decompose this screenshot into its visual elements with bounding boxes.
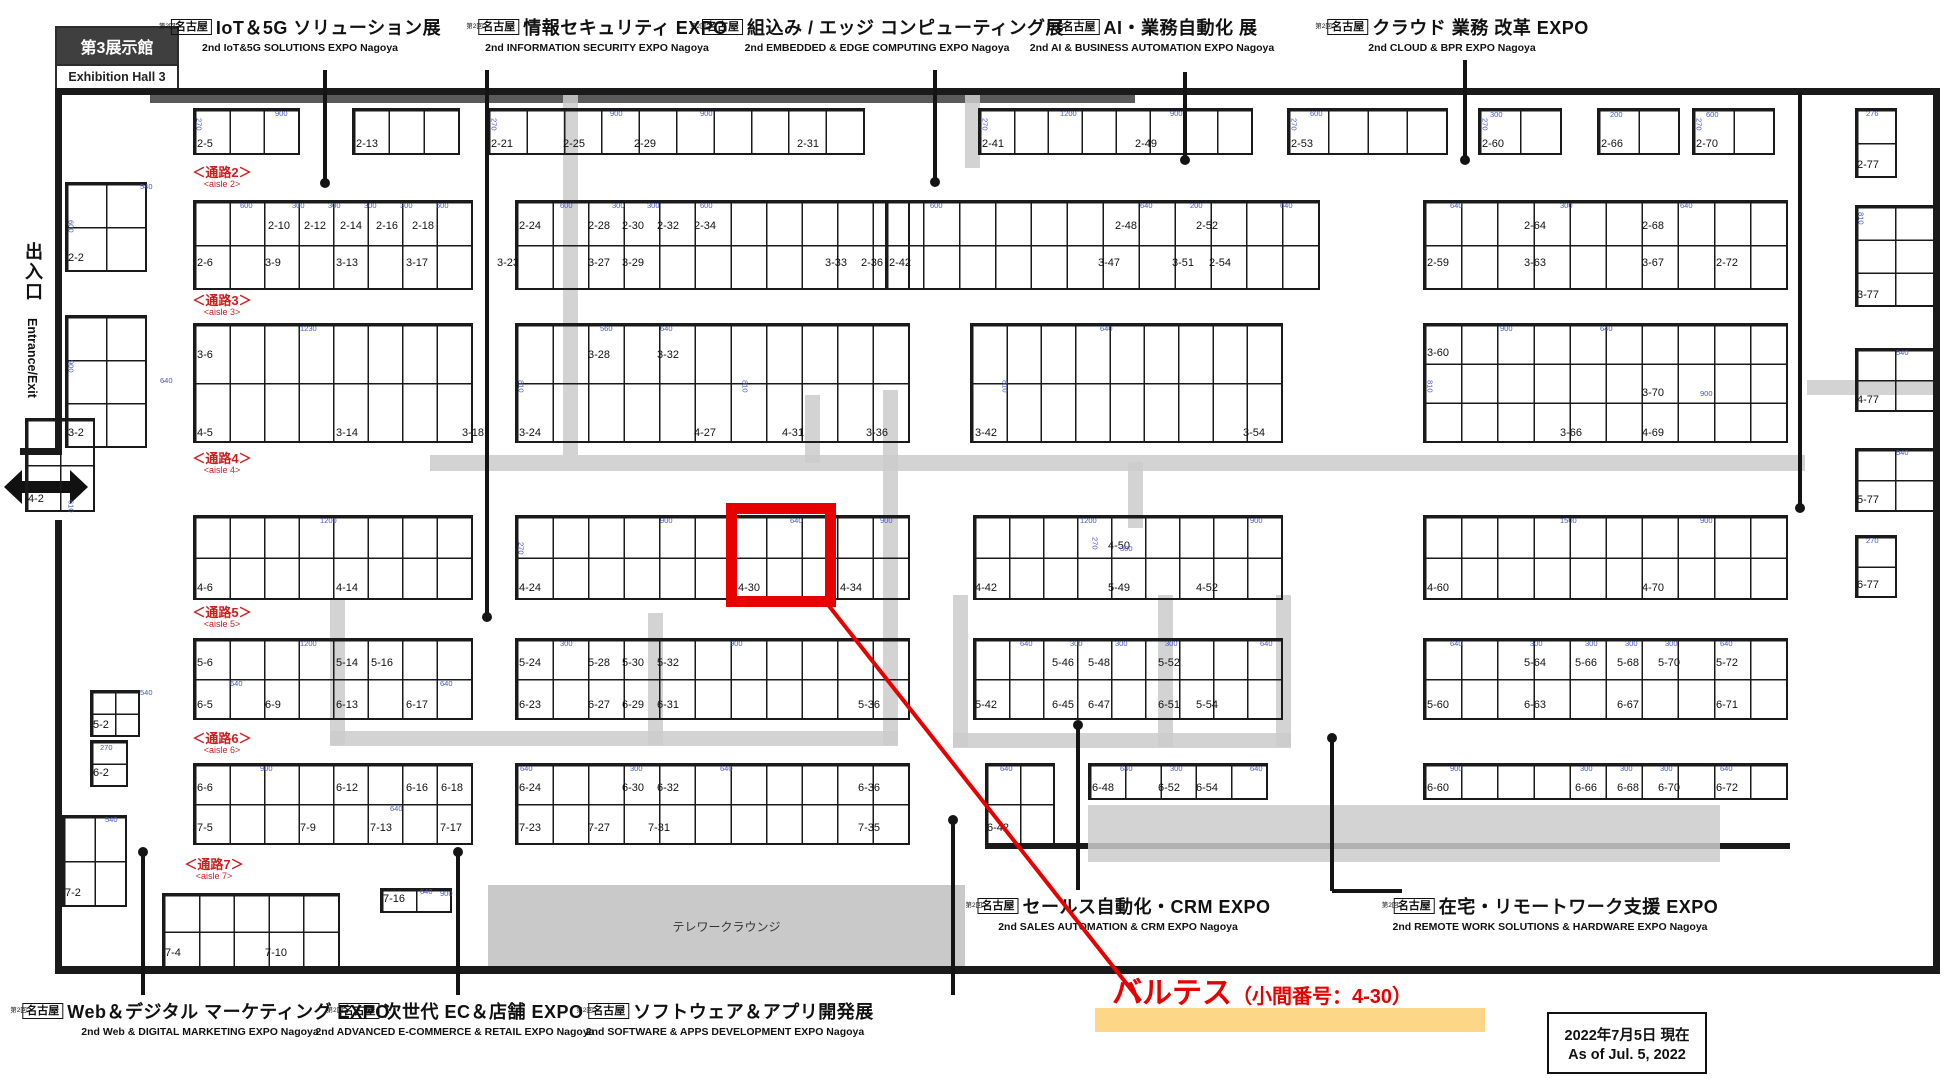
expo-edition-prefix: 第2回 <box>1046 24 1054 31</box>
dimension-label: 300 <box>1665 640 1678 648</box>
expo-title-jp: 組込み / エッジ コンピューティング展 <box>747 14 1064 40</box>
booth-label: 2-54 <box>1209 258 1231 269</box>
aisle-label-en: <aisle 6> <box>192 746 251 756</box>
booth-block <box>193 763 473 845</box>
booth-label: 3-18 <box>462 428 484 439</box>
expo-edition-prefix: 第2回 <box>576 1008 584 1015</box>
dimension-label: 640 <box>1260 640 1273 648</box>
booth-label: 6-17 <box>406 700 428 711</box>
date-box: 2022年7月5日 現在 As of Jul. 5, 2022 <box>1547 1012 1707 1074</box>
booth-label: 5-32 <box>657 658 679 669</box>
expo-title-en: 2nd SOFTWARE & APPS DEVELOPMENT EXPO Nag… <box>576 1026 874 1038</box>
booth-block <box>515 200 910 290</box>
booth-label: 2-10 <box>268 221 290 232</box>
dimension-label: 640 <box>1250 765 1263 773</box>
booth-label: 4-24 <box>519 583 541 594</box>
dimension-label: 900 <box>67 360 75 373</box>
aisle-label-en: <aisle 4> <box>192 466 251 476</box>
leader-line <box>323 70 327 183</box>
booth-label: 4-69 <box>1642 428 1664 439</box>
booth-label: 2-36 <box>861 258 883 269</box>
dimension-label: 300 <box>1620 765 1633 773</box>
venue-badge: 名古屋 <box>1327 19 1368 36</box>
booth-label: 3-60 <box>1427 348 1449 359</box>
booth-label: 7-5 <box>197 823 213 834</box>
booth-label: 2-59 <box>1427 258 1449 269</box>
expo-title-row: 第2回名古屋クラウド 業務 改革 EXPO <box>1315 14 1589 40</box>
booth-label: 7-13 <box>370 823 392 834</box>
booth-label: 5-70 <box>1658 658 1680 669</box>
booth-label: 2-6 <box>197 258 213 269</box>
booth-label: 2-77 <box>1857 160 1879 171</box>
booth-label: 6-16 <box>406 783 428 794</box>
dimension-label: 900 <box>610 110 623 118</box>
booth-label: 5-14 <box>336 658 358 669</box>
dimension-label: 900 <box>1700 390 1713 398</box>
dimension-label: 600 <box>700 202 713 210</box>
booth-block <box>515 763 910 845</box>
booth-label: 5-16 <box>371 658 393 669</box>
dimension-label: 900 <box>880 517 893 525</box>
booth-label: 3-23 <box>497 258 519 269</box>
booth-label: 6-5 <box>197 700 213 711</box>
booth-label: 3-27 <box>588 258 610 269</box>
expo-label: 第2回名古屋セールス自動化・CRM EXPO2nd SALES AUTOMATI… <box>965 893 1270 933</box>
dimension-label: 540 <box>1896 449 1909 457</box>
booth-label: 2-12 <box>304 221 326 232</box>
expo-label: 第2回名古屋情報セキュリティ EXPO2nd INFORMATION SECUR… <box>466 14 727 54</box>
expo-edition-prefix: 第2回 <box>466 24 474 31</box>
dimension-label: 270 <box>981 118 989 131</box>
highlight-booth-box <box>726 503 836 607</box>
expo-edition-prefix: 第2回 <box>1315 24 1323 31</box>
booth-label: 6-70 <box>1658 783 1680 794</box>
booth-label: 6-13 <box>336 700 358 711</box>
booth-label: 5-49 <box>1108 583 1130 594</box>
dimension-label: 900 <box>1450 765 1463 773</box>
aisle-label: ＜通路2＞<aisle 2> <box>192 166 251 190</box>
venue-badge: 名古屋 <box>702 19 743 36</box>
aisle-path <box>1088 805 1720 862</box>
dimension-label: 900 <box>260 765 273 773</box>
dimension-label: 640 <box>440 680 453 688</box>
booth-label: 2-60 <box>1482 139 1504 150</box>
booth-label: 2-16 <box>376 221 398 232</box>
booth-label: 6-54 <box>1196 783 1218 794</box>
dimension-label: 600 <box>1706 111 1719 119</box>
aisle-label-jp: ＜通路4＞ <box>192 452 251 466</box>
dimension-label: 300 <box>1580 765 1593 773</box>
aisle-label-jp: ＜通路5＞ <box>192 606 251 620</box>
booth-label: 6-30 <box>622 783 644 794</box>
dimension-label: 300 <box>400 202 413 210</box>
dimension-label: 560 <box>600 325 613 333</box>
venue-badge: 名古屋 <box>977 898 1018 915</box>
venue-badge: 名古屋 <box>478 19 519 36</box>
expo-edition-prefix: 第2回 <box>159 24 167 31</box>
expo-title-jp: 在宅・リモートワーク支援 EXPO <box>1439 893 1719 919</box>
dimension-label: 640 <box>1140 202 1153 210</box>
dimension-label: 540 <box>140 689 153 697</box>
booth-label: 3-47 <box>1098 258 1120 269</box>
expo-edition-prefix: 第2回 <box>1382 903 1390 910</box>
booth-label: 2-21 <box>491 139 513 150</box>
booth-label: 5-2 <box>93 720 109 731</box>
dimension-label: 540 <box>140 183 153 191</box>
dimension-label: 640 <box>1720 765 1733 773</box>
booth-label: 6-48 <box>1092 783 1114 794</box>
booth-label: 6-51 <box>1158 700 1180 711</box>
dimension-label: 640 <box>1020 640 1033 648</box>
aisle-label: ＜通路6＞<aisle 6> <box>192 732 251 756</box>
booth-label: 6-12 <box>336 783 358 794</box>
booth-label: 2-64 <box>1524 221 1546 232</box>
booth-label: 6-32 <box>657 783 679 794</box>
dimension-label: 1200 <box>1060 110 1077 118</box>
dimension-label: 540 <box>105 816 118 824</box>
booth-label: 6-2 <box>93 768 109 779</box>
dimension-label: 640 <box>660 325 673 333</box>
booth-label: 2-31 <box>797 139 819 150</box>
aisle-path <box>330 731 898 746</box>
expo-title-row: 第2回名古屋セールス自動化・CRM EXPO <box>965 893 1270 919</box>
venue-badge: 名古屋 <box>1394 898 1435 915</box>
booth-label: 5-77 <box>1857 495 1879 506</box>
booth-label: 2-66 <box>1601 139 1623 150</box>
leader-dot <box>320 178 330 188</box>
booth-label: 3-32 <box>657 350 679 361</box>
aisle-label-jp: ＜通路6＞ <box>192 732 251 746</box>
highlight-company: バルテス <box>1112 977 1232 1010</box>
booth-label: 6-9 <box>265 700 281 711</box>
expo-title-en: 2nd INFORMATION SECURITY EXPO Nagoya <box>466 42 727 54</box>
booth-label: 3-66 <box>1560 428 1582 439</box>
booth-block <box>193 515 473 600</box>
booth-label: 3-14 <box>336 428 358 439</box>
dimension-label: 900 <box>275 110 288 118</box>
expo-title-row: 第2回名古屋IoT＆5G ソリューション展 <box>159 14 441 40</box>
leader-line <box>1330 738 1334 891</box>
booth-label: 2-68 <box>1642 221 1664 232</box>
dimension-label: 300 <box>630 765 643 773</box>
dimension-label: 200 <box>1610 111 1623 119</box>
expo-label: 第2回名古屋次世代 EC＆店舗 EXPO2nd ADVANCED E-COMME… <box>315 998 594 1038</box>
booth-block <box>515 323 910 443</box>
booth-label: 5-66 <box>1575 658 1597 669</box>
aisle-path <box>430 455 1805 471</box>
dimension-label: 1200 <box>320 517 337 525</box>
booth-label: 3-29 <box>622 258 644 269</box>
booth-label: 5-48 <box>1088 658 1110 669</box>
leader-dot <box>138 847 148 857</box>
leader-line <box>141 852 145 995</box>
booth-label: 2-24 <box>519 221 541 232</box>
leader-dot <box>1180 155 1190 165</box>
booth-label: 3-9 <box>265 258 281 269</box>
dimension-label: 270 <box>1481 118 1489 131</box>
dimension-label: 270 <box>1091 537 1099 550</box>
dimension-label: 640 <box>160 377 173 385</box>
expo-label: 第2回名古屋組込み / エッジ コンピューティング展2nd EMBEDDED &… <box>690 14 1064 54</box>
booth-label: 6-68 <box>1617 783 1639 794</box>
expo-title-row: 第2回名古屋情報セキュリティ EXPO <box>466 14 727 40</box>
dimension-label: 270 <box>517 542 525 555</box>
booth-label: 6-27 <box>588 700 610 711</box>
booth-label: 3-70 <box>1642 388 1664 399</box>
dimension-label: 300 <box>1165 640 1178 648</box>
leader-dot <box>1327 733 1337 743</box>
dimension-label: 300 <box>560 640 573 648</box>
leader-line <box>456 852 460 995</box>
dimension-label: 640 <box>1720 640 1733 648</box>
booth-label: 2-13 <box>356 139 378 150</box>
venue-badge: 名古屋 <box>1058 19 1099 36</box>
booth-label: 2-53 <box>1291 139 1313 150</box>
booth-label: 5-28 <box>588 658 610 669</box>
booth-label: 5-68 <box>1617 658 1639 669</box>
expo-title-jp: ソフトウェア＆アプリ開発展 <box>633 998 874 1024</box>
booth-label: 7-9 <box>300 823 316 834</box>
dimension-label: 810 <box>1426 380 1434 393</box>
booth-label: 2-5 <box>197 139 213 150</box>
dimension-label: 610 <box>67 500 75 513</box>
booth-label: 6-66 <box>1575 783 1597 794</box>
expo-title-row: 第2回名古屋ソフトウェア＆アプリ開発展 <box>576 998 874 1024</box>
leader-line <box>1463 60 1467 160</box>
booth-label: 6-67 <box>1617 700 1639 711</box>
booth-label: 5-64 <box>1524 658 1546 669</box>
dimension-label: 810 <box>741 380 749 393</box>
dimension-label: 640 <box>230 680 243 688</box>
booth-block <box>970 323 1283 443</box>
leader-line <box>1076 725 1080 890</box>
dimension-label: 640 <box>1120 765 1133 773</box>
dimension-label: 900 <box>1500 325 1513 333</box>
expo-edition-prefix: 第2回 <box>326 1008 334 1015</box>
wall-segment <box>55 88 62 452</box>
booth-label: 6-23 <box>519 700 541 711</box>
dimension-label: 640 <box>720 765 733 773</box>
booth-label: 7-17 <box>440 823 462 834</box>
expo-title-jp: クラウド 業務 改革 EXPO <box>1372 14 1589 40</box>
entrance-arrow-left-head <box>4 470 22 504</box>
booth-label: 3-67 <box>1642 258 1664 269</box>
expo-edition-prefix: 第2回 <box>690 24 698 31</box>
booth-label: 2-30 <box>622 221 644 232</box>
expo-title-row: 第2回名古屋在宅・リモートワーク支援 EXPO <box>1382 893 1719 919</box>
leader-dot <box>948 815 958 825</box>
expo-title-jp: AI・業務自動化 展 <box>1103 14 1257 40</box>
booth-label: 2-48 <box>1115 221 1137 232</box>
telework-lounge-label: テレワークラウンジ <box>672 918 780 935</box>
dimension-label: 1200 <box>300 640 317 648</box>
dimension-label: 900 <box>1250 517 1263 525</box>
booth-label: 4-2 <box>28 494 44 505</box>
booth-block <box>885 200 1320 290</box>
booth-label: 5-6 <box>197 658 213 669</box>
dimension-label: 810 <box>517 380 525 393</box>
dimension-label: 270 <box>1695 118 1703 131</box>
expo-title-jp: 次世代 EC＆店舗 EXPO <box>383 998 583 1024</box>
dimension-label: 900 <box>660 517 673 525</box>
booth-label: 5-30 <box>622 658 644 669</box>
booth-label: 7-10 <box>265 948 287 959</box>
dimension-label: 900 <box>700 110 713 118</box>
entrance-label-jp: 出入口 <box>20 242 46 302</box>
dimension-label: 900 <box>440 890 453 898</box>
dimension-label: 600 <box>436 202 449 210</box>
dimension-label: 640 <box>1680 202 1693 210</box>
dimension-label: 300 <box>1660 765 1673 773</box>
aisle-label-en: <aisle 2> <box>192 180 251 190</box>
booth-label: 5-72 <box>1716 658 1738 669</box>
expo-edition-prefix: 第2回 <box>965 903 973 910</box>
expo-label: 第2回名古屋ソフトウェア＆アプリ開発展2nd SOFTWARE & APPS D… <box>576 998 874 1038</box>
aisle-label: ＜通路3＞<aisle 3> <box>192 294 251 318</box>
booth-label: 4-60 <box>1427 583 1449 594</box>
dimension-label: 640 <box>1450 202 1463 210</box>
booth-label: 5-36 <box>858 700 880 711</box>
aisle-label-en: <aisle 7> <box>184 872 243 882</box>
booth-label: 2-41 <box>982 139 1004 150</box>
expo-label: 第2回名古屋AI・業務自動化 展2nd AI & BUSINESS AUTOMA… <box>1030 14 1274 54</box>
date-jp: 2022年7月5日 現在 <box>1549 1024 1705 1045</box>
wall-segment <box>55 520 62 972</box>
leader-dot <box>453 847 463 857</box>
expo-title-row: 第2回名古屋AI・業務自動化 展 <box>1030 14 1274 40</box>
dimension-label: 600 <box>67 220 75 233</box>
expo-title-en: 2nd ADVANCED E-COMMERCE & RETAIL EXPO Na… <box>315 1026 594 1038</box>
leader-line <box>1183 72 1187 160</box>
dimension-label: 900 <box>1170 110 1183 118</box>
booth-label: 4-70 <box>1642 583 1664 594</box>
booth-label: 4-5 <box>197 428 213 439</box>
aisle-label-en: <aisle 5> <box>192 620 251 630</box>
dimension-label: 1200 <box>1080 517 1097 525</box>
dimension-label: 270 <box>100 744 113 752</box>
aisle-label: ＜通路7＞<aisle 7> <box>184 858 243 882</box>
wall-segment <box>55 88 1940 95</box>
booth-label: 6-45 <box>1052 700 1074 711</box>
dimension-label: 540 <box>1896 349 1909 357</box>
aisle-label-en: <aisle 3> <box>192 308 251 318</box>
booth-label: 5-60 <box>1427 700 1449 711</box>
booth-label: 3-77 <box>1857 290 1879 301</box>
dimension-label: 810 <box>1001 380 1009 393</box>
booth-label: 3-33 <box>825 258 847 269</box>
dimension-label: 270 <box>1866 537 1879 545</box>
booth-label: 2-70 <box>1696 139 1718 150</box>
booth-label: 3-2 <box>68 428 84 439</box>
booth-block <box>973 638 1283 720</box>
date-en: As of Jul. 5, 2022 <box>1549 1047 1705 1063</box>
booth-label: 7-16 <box>383 894 405 905</box>
expo-label: 第2回名古屋クラウド 業務 改革 EXPO2nd CLOUD & BPR EXP… <box>1315 14 1589 54</box>
aisle-path <box>953 595 968 747</box>
dimension-label: 300 <box>1530 640 1543 648</box>
dimension-label: 600 <box>1310 110 1323 118</box>
booth-label: 4-52 <box>1196 583 1218 594</box>
exhibition-floor-map: 第3展示館 Exhibition Hall 3 出入口 Entrance/Exi… <box>0 0 1950 1085</box>
expo-title-en: 2nd SALES AUTOMATION & CRM EXPO Nagoya <box>965 921 1270 933</box>
booth-block <box>1423 515 1788 600</box>
booth-label: 6-60 <box>1427 783 1449 794</box>
booth-label: 6-31 <box>657 700 679 711</box>
dimension-label: 300 <box>647 202 660 210</box>
expo-title-en: 2nd AI & BUSINESS AUTOMATION EXPO Nagoya <box>1030 42 1274 54</box>
dimension-label: 900 <box>730 640 743 648</box>
dimension-label: 1500 <box>1560 517 1577 525</box>
booth-label: 4-34 <box>840 583 862 594</box>
booth-label: 3-28 <box>588 350 610 361</box>
aisle-label: ＜通路4＞<aisle 4> <box>192 452 251 476</box>
dimension-label: 640 <box>390 805 403 813</box>
dimension-label: 300 <box>1120 545 1133 553</box>
booth-label: 2-14 <box>340 221 362 232</box>
highlight-label: バルテス（小間番号：4-30） <box>1112 968 1412 1012</box>
booth-label: 3-54 <box>1243 428 1265 439</box>
booth-block <box>978 108 1253 155</box>
booth-label: 2-49 <box>1135 139 1157 150</box>
booth-label: 4-14 <box>336 583 358 594</box>
booth-label: 6-24 <box>519 783 541 794</box>
booth-label: 4-77 <box>1857 395 1879 406</box>
aisle-path <box>953 733 1291 748</box>
expo-title-en: 2nd IoT&5G SOLUTIONS EXPO Nagoya <box>159 42 441 54</box>
dimension-label: 270 <box>1290 118 1298 131</box>
booth-label: 2-34 <box>694 221 716 232</box>
booth-label: 3-24 <box>519 428 541 439</box>
leader-dot <box>482 612 492 622</box>
dimension-label: 300 <box>292 202 305 210</box>
dimension-label: 640 <box>420 888 433 896</box>
dimension-label: 810 <box>1857 212 1865 225</box>
dimension-label: 900 <box>1700 517 1713 525</box>
dimension-label: 300 <box>1170 765 1183 773</box>
leader-dot <box>1795 503 1805 513</box>
booth-label: 2-32 <box>657 221 679 232</box>
booth-label: 6-29 <box>622 700 644 711</box>
booth-label: 7-27 <box>588 823 610 834</box>
expo-label: 第2回名古屋在宅・リモートワーク支援 EXPO2nd REMOTE WORK S… <box>1382 893 1719 933</box>
dimension-label: 300 <box>364 202 377 210</box>
booth-label: 3-6 <box>197 350 213 361</box>
booth-label: 2-2 <box>68 253 84 264</box>
booth-block <box>193 200 473 290</box>
booth-label: 5-42 <box>975 700 997 711</box>
dimension-label: 640 <box>1100 325 1113 333</box>
dimension-label: 640 <box>1000 765 1013 773</box>
booth-label: 2-29 <box>634 139 656 150</box>
booth-block <box>515 638 910 720</box>
venue-badge: 名古屋 <box>588 1003 629 1020</box>
booth-label: 5-24 <box>519 658 541 669</box>
booth-label: 2-72 <box>1716 258 1738 269</box>
booth-label: 5-52 <box>1158 658 1180 669</box>
booth-block <box>1423 323 1788 443</box>
booth-label: 6-52 <box>1158 783 1180 794</box>
dimension-label: 300 <box>1585 640 1598 648</box>
leader-dot <box>1073 720 1083 730</box>
dimension-label: 600 <box>560 202 573 210</box>
venue-badge: 名古屋 <box>22 1003 63 1020</box>
booth-label: 3-63 <box>1524 258 1546 269</box>
booth-label: 4-31 <box>782 428 804 439</box>
dimension-label: 640 <box>1280 202 1293 210</box>
expo-title-en: 2nd CLOUD & BPR EXPO Nagoya <box>1315 42 1589 54</box>
highlight-booth-note: （小間番号：4-30） <box>1232 986 1412 1008</box>
dimension-label: 300 <box>1490 111 1503 119</box>
